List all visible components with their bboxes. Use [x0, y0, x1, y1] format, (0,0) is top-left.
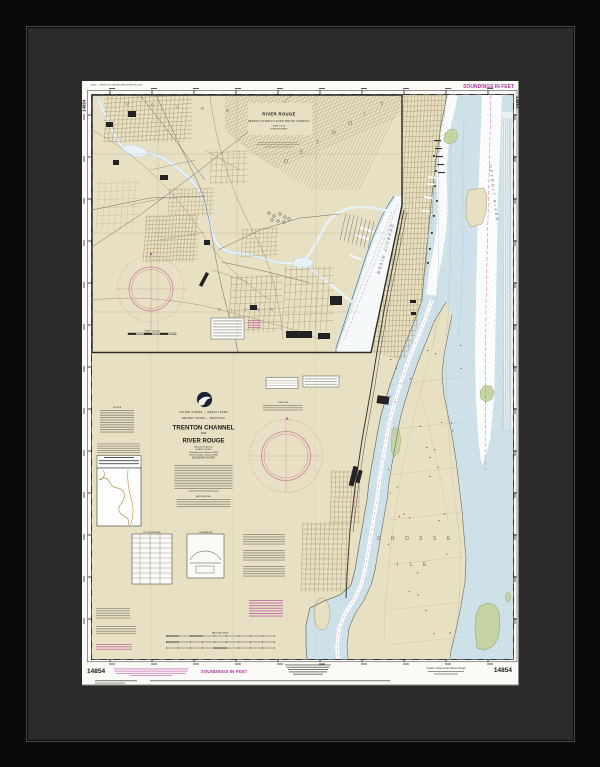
svg-text:UNITED STATES — GREAT LAKES: UNITED STATES — GREAT LAKES — [179, 411, 228, 414]
svg-text:NAUTICAL MILES: NAUTICAL MILES — [212, 632, 229, 635]
svg-text:O: O — [405, 536, 409, 542]
svg-text:CAUTION: CAUTION — [278, 401, 288, 404]
svg-text:O: O — [348, 121, 353, 127]
svg-text:R: R — [270, 307, 273, 312]
svg-text:14854: 14854 — [82, 99, 87, 112]
svg-text:North American Datum of 1983: North American Datum of 1983 — [189, 451, 218, 454]
svg-text:14854: 14854 — [515, 96, 520, 109]
svg-text:(World Geodetic System 1984): (World Geodetic System 1984) — [189, 454, 218, 457]
svg-text:TRENTON CHANNEL: TRENTON CHANNEL — [173, 425, 235, 432]
svg-text:L: L — [410, 562, 413, 568]
svg-text:R: R — [332, 131, 336, 137]
svg-text:14854: 14854 — [87, 668, 105, 675]
svg-text:SOUNDINGS IN FEET: SOUNDINGS IN FEET — [463, 84, 514, 90]
svg-text:I: I — [397, 562, 398, 568]
svg-text:DETROIT RIVER TO FORD MOTOR CO: DETROIT RIVER TO FORD MOTOR COMPANY — [248, 120, 310, 123]
svg-text:Trenton Channel and River Roug: Trenton Channel and River Rouge — [426, 666, 466, 670]
svg-text:SCALE 1:15,000: SCALE 1:15,000 — [273, 125, 286, 128]
svg-text:CLEARANCES: CLEARANCES — [199, 531, 213, 534]
svg-text:DETROIT RIVER — MICHIGAN: DETROIT RIVER — MICHIGAN — [182, 417, 225, 420]
svg-text:SOUNDINGS IN FEET: SOUNDINGS IN FEET — [201, 669, 248, 674]
svg-text:AND: AND — [201, 431, 207, 435]
svg-text:I: I — [231, 307, 232, 312]
svg-text:14854 — TRENTON CHANNEL AND RI: 14854 — TRENTON CHANNEL AND RIVER ROUGE — [90, 84, 143, 87]
svg-text:D: D — [126, 101, 129, 106]
svg-text:NOTE A: NOTE A — [113, 406, 122, 409]
svg-text:LIST OF BRIDGES: LIST OF BRIDGES — [143, 532, 161, 534]
svg-text:R: R — [201, 106, 204, 111]
svg-text:R: R — [391, 536, 395, 542]
svg-text:SOUNDINGS IN FEET: SOUNDINGS IN FEET — [192, 457, 216, 459]
svg-text:RIVER ROUGE: RIVER ROUGE — [182, 439, 224, 445]
svg-text:E: E — [151, 103, 154, 108]
svg-text:E: E — [257, 307, 260, 312]
svg-text:Mercator Projection: Mercator Projection — [194, 446, 213, 449]
svg-text:D: D — [284, 159, 288, 165]
svg-text:R: R — [218, 307, 221, 312]
svg-text:SOUNDINGS IN FEET: SOUNDINGS IN FEET — [270, 129, 287, 131]
svg-text:A: A — [176, 104, 179, 109]
svg-text:V: V — [244, 307, 247, 312]
svg-text:SCALE 1:15,000: SCALE 1:15,000 — [196, 448, 212, 451]
svg-text:RIVER ROUGE: RIVER ROUGE — [262, 112, 295, 117]
svg-text:14854: 14854 — [494, 667, 512, 674]
svg-text:B: B — [226, 108, 229, 113]
svg-text:G: G — [377, 536, 381, 542]
svg-text:E: E — [300, 150, 304, 156]
svg-text:AUTHORITIES: AUTHORITIES — [196, 495, 211, 498]
